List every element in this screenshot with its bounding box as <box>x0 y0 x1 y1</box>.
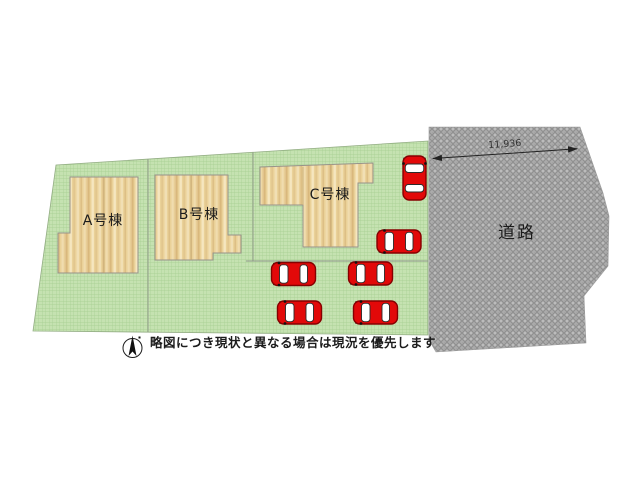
car <box>377 229 421 254</box>
car <box>354 300 398 325</box>
building-b: B号棟 <box>155 175 241 260</box>
disclaimer-text: 略図につき現状と異なる場合は現況を優先します <box>150 335 436 350</box>
building-a: A号棟 <box>58 177 138 273</box>
car-vertical <box>402 156 427 200</box>
building-a-label: A号棟 <box>83 213 124 229</box>
site-plan-page: A号棟 B号棟 C号棟 道路 11,936 <box>0 0 640 480</box>
car <box>272 262 316 287</box>
car <box>349 261 393 286</box>
building-c-label: C号棟 <box>310 187 351 203</box>
road-label: 道路 <box>498 223 536 243</box>
dimension-label: 11,936 <box>488 138 522 151</box>
site-plan-drawing: A号棟 B号棟 C号棟 道路 11,936 <box>0 0 640 480</box>
north-arrow-icon <box>123 336 142 358</box>
car <box>278 300 322 325</box>
building-b-label: B号棟 <box>179 207 220 223</box>
